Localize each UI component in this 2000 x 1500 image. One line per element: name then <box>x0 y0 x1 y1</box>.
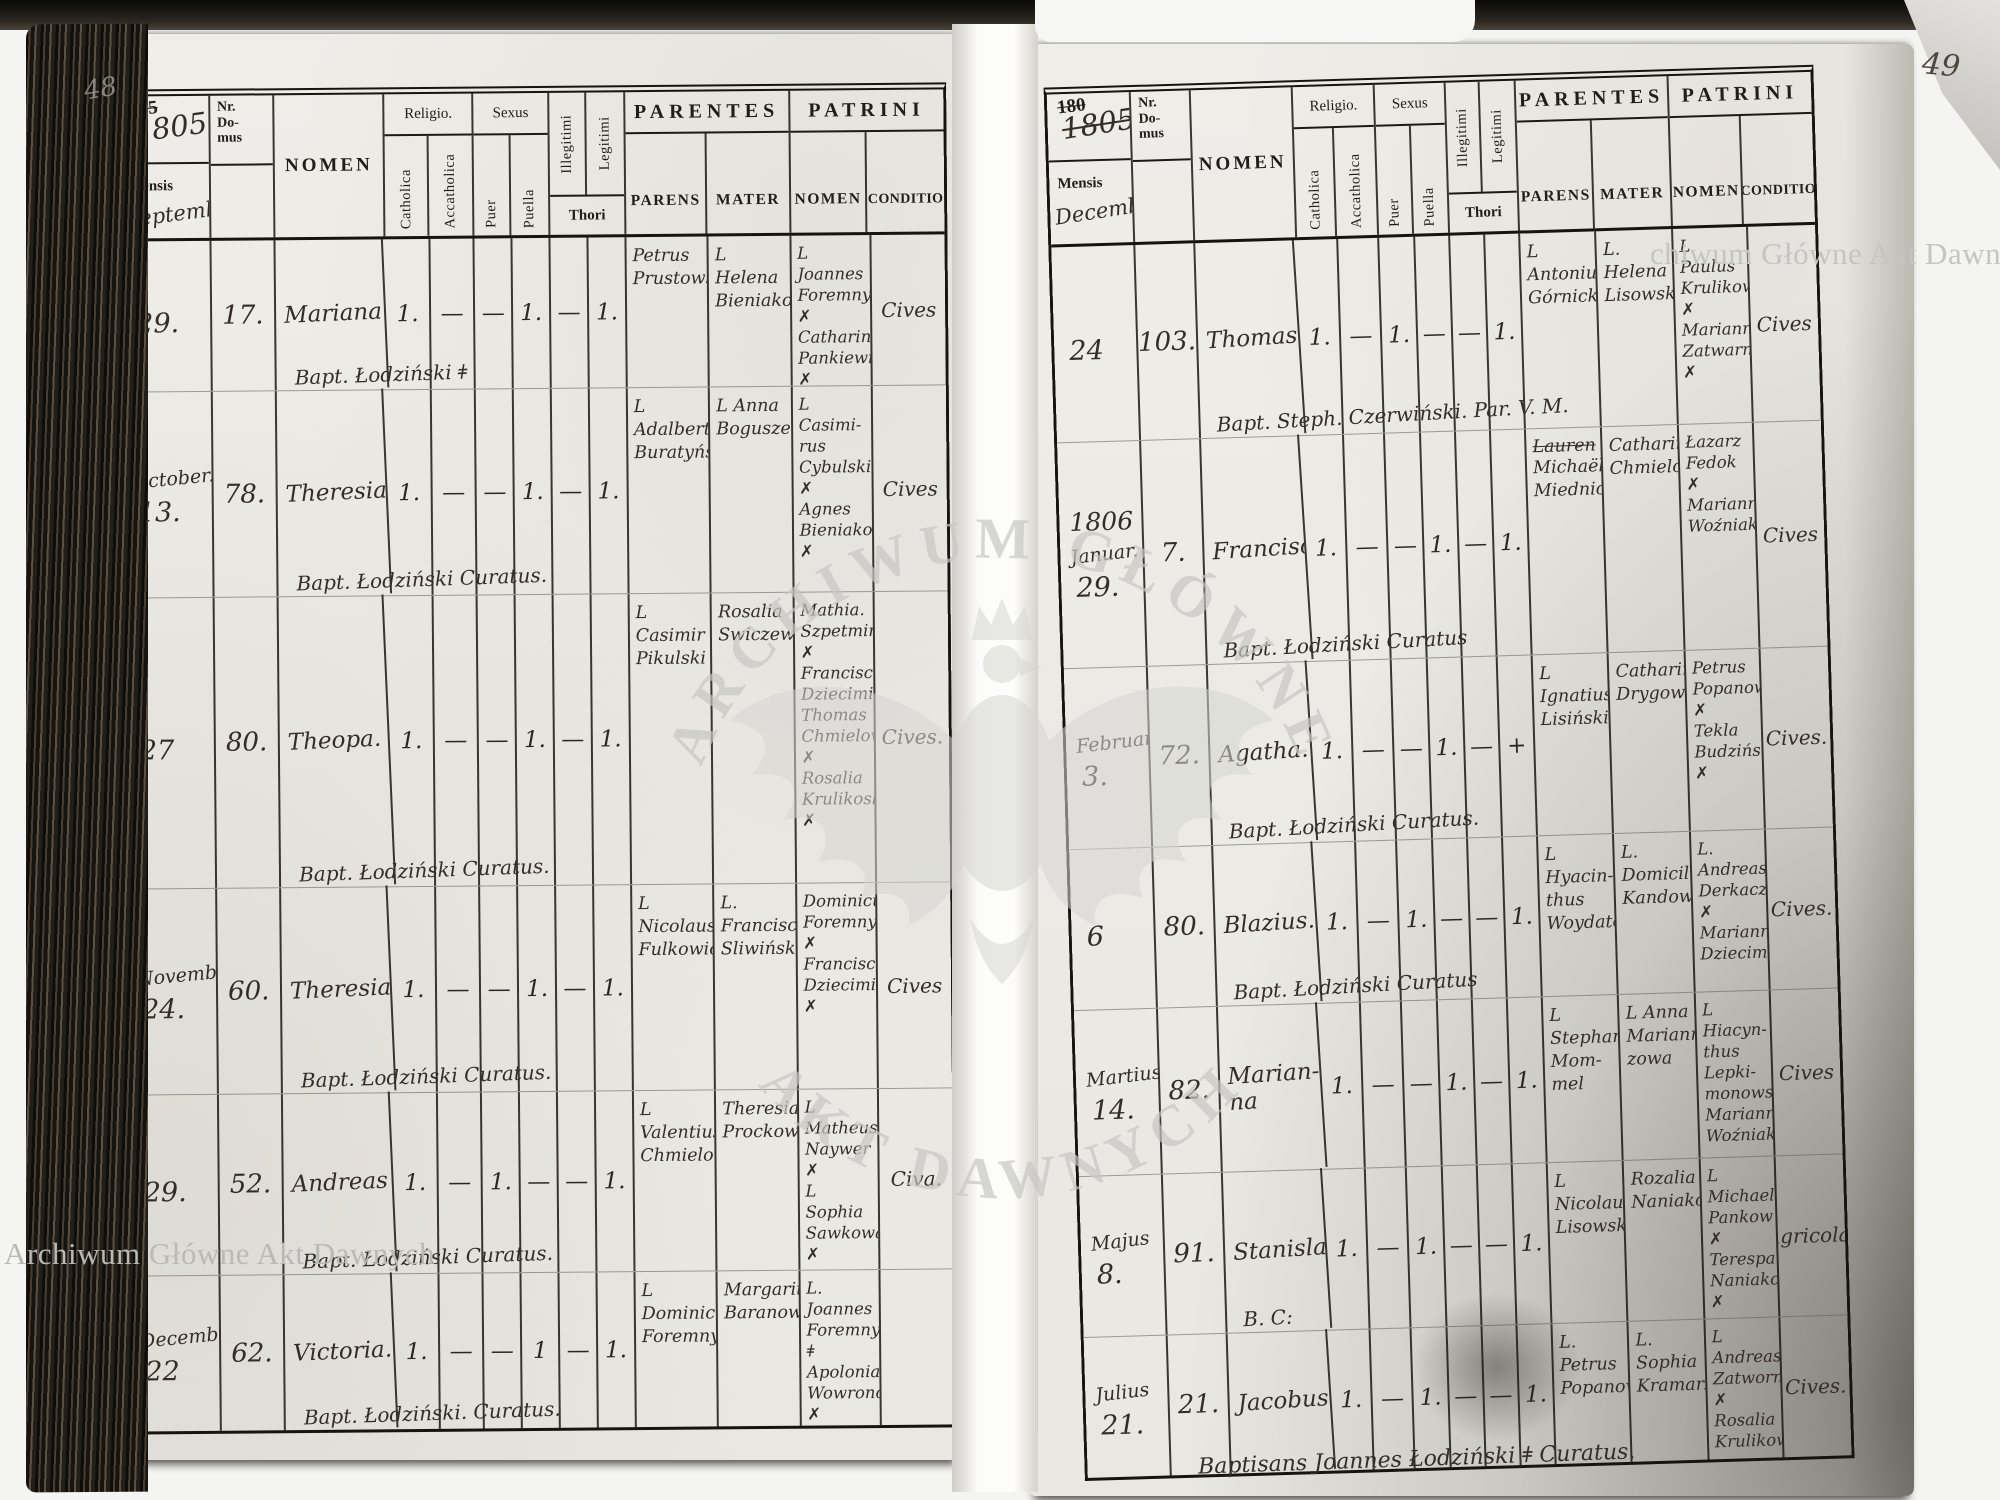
entry-day: 13. <box>138 497 212 529</box>
year-box: 180 1805 <box>1047 92 1131 162</box>
mater-cell: MATER <box>1592 118 1671 228</box>
mater-name: L. Domicilla Kandowa <box>1621 840 1688 911</box>
mater-cell: MATER <box>707 133 789 234</box>
nr-domus-label: Nr. Do- mus <box>1131 90 1191 162</box>
mater-label: MATER <box>1600 184 1665 204</box>
illegitimi-label: Illegitimi <box>558 114 576 173</box>
cell-conditio: Cives. <box>1766 828 1838 990</box>
page-number-right: 49 <box>1921 46 1962 84</box>
cell-mater: L. Sophia Kramarzowa <box>1629 1320 1710 1462</box>
page-number-left: 48 <box>82 72 119 107</box>
parens-name: L Antonius Górnicki <box>1526 239 1593 310</box>
acatholica-label: Accatholica <box>442 154 460 229</box>
cell-nomen: Theopa. <box>273 594 396 889</box>
entry-day: 24 <box>1069 334 1137 367</box>
parens-name: Michaël Miednicek. <box>1533 455 1600 503</box>
patrini-nomen-label: NOMEN <box>1673 182 1740 202</box>
year-note <box>1095 1372 1167 1374</box>
cell-puella: 1. <box>516 595 556 885</box>
register-row: 29. 17. Mariana 1. — — 1. — 1. Petrus Pr… <box>120 234 945 391</box>
sexus-label: Sexus <box>1375 83 1444 127</box>
patrini-nomen-cell: NOMEN <box>1670 116 1744 226</box>
cell-conditio: Cives. <box>1760 647 1833 829</box>
entry-month: Julius <box>1094 1376 1168 1406</box>
acatholica-cell: Accatholica <box>428 136 472 236</box>
ink-smudge <box>1412 1292 1582 1442</box>
parens-label: PARENS <box>1521 186 1591 206</box>
cell-parens: L Stephan Mom- mel <box>1543 995 1624 1162</box>
conditio-cell: CONDITIO <box>867 131 944 232</box>
cell-patrini-nomen: L. Andreas Derkacz ✗ Marianna Dziecimiak… <box>1691 830 1771 992</box>
cell-conditio <box>881 1269 955 1425</box>
patrini-nomen-cell: NOMEN <box>790 132 867 233</box>
thori-label: Thori <box>1449 191 1518 233</box>
mater-name: L Anna Boguszewska. <box>716 395 788 442</box>
conditio-cell: CONDITIO <box>1741 114 1815 224</box>
thori-group: Illegitimi Legitimi Thori <box>549 92 626 235</box>
entry-month <box>1064 324 1136 332</box>
nomen-header: NOMEN <box>1190 87 1297 240</box>
legitimi-cell: Legitimi <box>586 92 624 194</box>
illegitimi-cell: Illegitimi <box>549 93 587 195</box>
parentes-group: PARENTES PARENS MATER <box>1516 76 1673 230</box>
parens-name: L Hyacin- thus Woydatowicz <box>1544 842 1612 936</box>
cell-acatholica: — <box>436 886 482 1091</box>
puella-cell: Puella <box>1410 125 1447 234</box>
cell-patrini-nomen: L Michael Pankow ✗ Terespa Naniakowa ✗ <box>1700 1156 1780 1318</box>
cell-patrini-nomen: L. Joannes Foremny ǂ Apolonia Wowronowa … <box>800 1270 882 1426</box>
patrini-names: L Joannes Foremny ✗ Catharina Pankiewicz… <box>797 243 868 386</box>
parens-cell: PARENS <box>1517 120 1596 230</box>
patrini-names: Petrus Popanowicz ✗ Tekla Budzińska ✗ <box>1692 657 1760 785</box>
patrini-names: L Michael Pankow ✗ Terespa Naniakowa ✗ <box>1707 1165 1775 1314</box>
cell-mater: L Anna Mariannow- zowa <box>1619 993 1700 1160</box>
patrini-names: L. Joannes Foremny ǂ Apolonia Wowronowa … <box>806 1278 877 1425</box>
parens-name: L Stephan Mom- mel <box>1549 1003 1617 1097</box>
year-note <box>1064 320 1136 322</box>
entry-day: 21. <box>1101 1408 1169 1441</box>
cell-acatholica: — <box>433 596 480 886</box>
patrini-names: Łazarz Fedok ✗ Marianna Woźniakka. <box>1685 431 1752 538</box>
catholica-label: Catholica <box>397 169 415 229</box>
conditio-label: CONDITIO <box>1741 182 1815 200</box>
cell-puella: 1. <box>1437 999 1477 1165</box>
thori-label: Thori <box>550 194 624 235</box>
cell-patrini-nomen: L Joannes Foremny ✗ Catharina Pankiewicz… <box>791 235 873 386</box>
cell-conditio: Agricola. <box>1775 1154 1847 1316</box>
puer-label: Puer <box>1386 198 1404 227</box>
parentes-label: PARENTES <box>1516 76 1668 122</box>
mater-label: MATER <box>716 191 780 210</box>
religio-group: Religio. Catholica Accatholica <box>1293 85 1380 237</box>
table-header: 180 1805 Mensis December Nr. Do- mus NOM… <box>1047 72 1815 248</box>
parentes-group: PARENTES PARENS MATER <box>625 91 791 234</box>
cell-catholica: 1. <box>387 390 433 595</box>
illegitimi-label: Illegitimi <box>1454 107 1473 166</box>
entry-day: 24. <box>142 994 216 1026</box>
entry-month: November <box>136 961 216 990</box>
catholica-label: Catholica <box>1306 169 1325 230</box>
cell-conditio: Cives <box>1754 421 1828 648</box>
header-nr-domus-column: Nr. Do- mus <box>1131 90 1195 242</box>
patrini-label: PATRINI <box>1668 72 1811 118</box>
parens-name: L Ignatius Lisiński <box>1539 661 1606 732</box>
parens-name: L Nicolaus Lisowski. <box>1554 1169 1621 1240</box>
conditio-label: CONDITIO <box>868 191 944 208</box>
patrini-names: L. Andreas Derkacz ✗ Marianna Dziecimiak… <box>1697 838 1765 966</box>
patrini-names: L Andreas Zatwornicki ✗ Rosalia Krulikow… <box>1711 1325 1779 1453</box>
cell-mensis: Julius 21. <box>1084 1336 1172 1478</box>
parentes-label: PARENTES <box>625 91 788 134</box>
mater-name: Catharina Drygowa <box>1615 659 1682 707</box>
register-row: December 22 62. Victoria. 1. — — 1 — 1. <box>129 1268 954 1431</box>
table-header: 175 1805 Mensis Septemb: Nr. Do- mus NOM… <box>119 89 944 241</box>
entry-day: 27 <box>140 734 214 766</box>
struck-name: Lauren <box>1532 435 1598 457</box>
book-page-stack-edge <box>26 24 148 1493</box>
puella-cell: Puella <box>511 135 549 235</box>
cell-nr-domus: 60. <box>217 888 283 1094</box>
mater-name: Catharina Chmielowska <box>1609 433 1676 481</box>
eagle-watermark-icon <box>730 598 1274 984</box>
cell-patrini-nomen: Łazarz Fedok ✗ Marianna Woźniakka. <box>1679 423 1761 650</box>
header-mensis-column: 180 1805 Mensis December <box>1047 92 1135 244</box>
parens-name: L Dominicus Foremny <box>641 1279 713 1349</box>
legitimi-label: Legitimi <box>596 116 613 170</box>
thori-group: Illegitimi Legitimi Thori <box>1445 81 1520 233</box>
cell-nr-domus: 103. <box>1135 243 1200 440</box>
parens-label: PARENS <box>631 192 701 211</box>
religio-label: Religio. <box>1293 85 1375 129</box>
mater-name: Margaritha Baranowa. <box>724 1279 796 1326</box>
mater-name: L. Sophia Kramarzowa <box>1635 1328 1702 1399</box>
cell-patrini-nomen: L Hiacyn- thus Lepki- monowski Marianna … <box>1696 990 1776 1157</box>
mater-name: Rozalia Naniakowa. <box>1630 1167 1697 1215</box>
watermark-text-top-right: chiwum Główne Akt Dawnych <box>1650 236 2000 272</box>
cell-illegitimi: — <box>1473 998 1513 1164</box>
acatholica-cell: Accatholica <box>1334 127 1377 236</box>
entry-month <box>139 1166 217 1174</box>
parens-name: L Adalbert Buratyński <box>634 396 706 466</box>
legitimi-cell: Legitimi <box>1479 81 1516 192</box>
sexus-group: Sexus Puer Puella <box>473 93 550 236</box>
entry-day: 29. <box>144 1176 218 1208</box>
cell-puer: — <box>478 595 518 885</box>
cell-catholica: 1. <box>391 887 437 1092</box>
puella-label: Puella <box>1421 187 1439 227</box>
sexus-label: Sexus <box>473 93 547 136</box>
religio-label: Religio. <box>384 94 471 137</box>
religio-group: Religio. Catholica Accatholica <box>384 94 474 237</box>
parens-name: Petrus Prustowski: <box>632 245 704 292</box>
seal-bottom-text: AKT DAWNYCH <box>748 1049 1256 1213</box>
patrini-names: L Hiacyn- thus Lepki- monowski Marianna … <box>1702 999 1770 1148</box>
year-note <box>139 1162 218 1163</box>
patrini-nomen-label: NOMEN <box>795 190 862 209</box>
torn-paper-strip <box>1035 0 1475 42</box>
cell-conditio: Cives <box>1770 988 1842 1155</box>
puella-label: Puella <box>521 189 538 228</box>
cell-puer: — <box>1402 1000 1442 1166</box>
entry-month: December <box>139 1323 219 1352</box>
nomen-header: NOMEN <box>274 94 386 237</box>
watermark-text-bottom-left: Archiwum Główne Akt Dawnych <box>4 1236 435 1272</box>
cell-patrini-nomen: Petrus Popanowicz ✗ Tekla Budzińska ✗ <box>1685 649 1765 831</box>
cell-nr-domus: 80. <box>214 597 281 888</box>
cell-legitimi: 1. <box>1508 997 1548 1163</box>
cell-mensis: 24 <box>1051 245 1141 442</box>
nr-domus-label: Nr. Do- mus <box>210 95 273 166</box>
sexus-group: Sexus Puer Puella <box>1375 83 1450 235</box>
illegitimi-cell: Illegitimi <box>1445 82 1482 193</box>
cell-illegitimi: — <box>554 595 594 885</box>
cell-conditio: Cives. <box>1780 1315 1851 1457</box>
cell-acatholica: — <box>432 390 478 595</box>
cell-nomen: Theresia <box>277 885 396 1095</box>
register-scan: ARCHIWUM GŁÓWNE AKT DAWNYCH chiwum Główn… <box>0 0 2000 1500</box>
mater-name: L Helena Bieniakowa <box>715 244 787 314</box>
patrini-label: PATRINI <box>790 89 944 132</box>
puer-cell: Puer <box>1376 126 1413 235</box>
parens-cell: PARENS <box>625 133 707 234</box>
year-note <box>137 958 216 959</box>
catholica-cell: Catholica <box>1294 128 1337 237</box>
patrini-group: PATRINI NOMEN CONDITIO <box>790 89 944 232</box>
acatholica-label: Accatholica <box>1347 153 1366 228</box>
puer-label: Puer <box>483 200 500 229</box>
svg-text:AKT DAWNYCH: AKT DAWNYCH <box>748 1049 1256 1213</box>
torn-corner <box>1904 0 2000 170</box>
cell-catholica: 1. <box>389 596 436 886</box>
year-note <box>140 1320 219 1321</box>
cell-nomen: Theresia <box>273 388 392 598</box>
catholica-cell: Catholica <box>385 136 429 236</box>
cell-patrini-nomen: L Andreas Zatwornicki ✗ Rosalia Krulikow… <box>1705 1317 1784 1459</box>
archive-seal-watermark: ARCHIWUM GŁÓWNE AKT DAWNYCH <box>622 488 1382 1268</box>
mater-name: L Anna Mariannow- zowa <box>1625 1001 1692 1072</box>
entry-day: 22 <box>145 1356 219 1388</box>
cell-nr-domus: 62. <box>220 1275 286 1431</box>
header-nr-domus-column: Nr. Do- mus <box>210 95 276 238</box>
legitimi-label: Legitimi <box>1489 109 1508 163</box>
cell-nr-domus: 17. <box>211 240 277 391</box>
patrini-group: PATRINI NOMEN CONDITIO <box>1668 72 1814 226</box>
cell-nr-domus: 78. <box>212 391 278 597</box>
cell-conditio: Cives <box>872 234 946 385</box>
puer-cell: Puer <box>474 135 512 235</box>
